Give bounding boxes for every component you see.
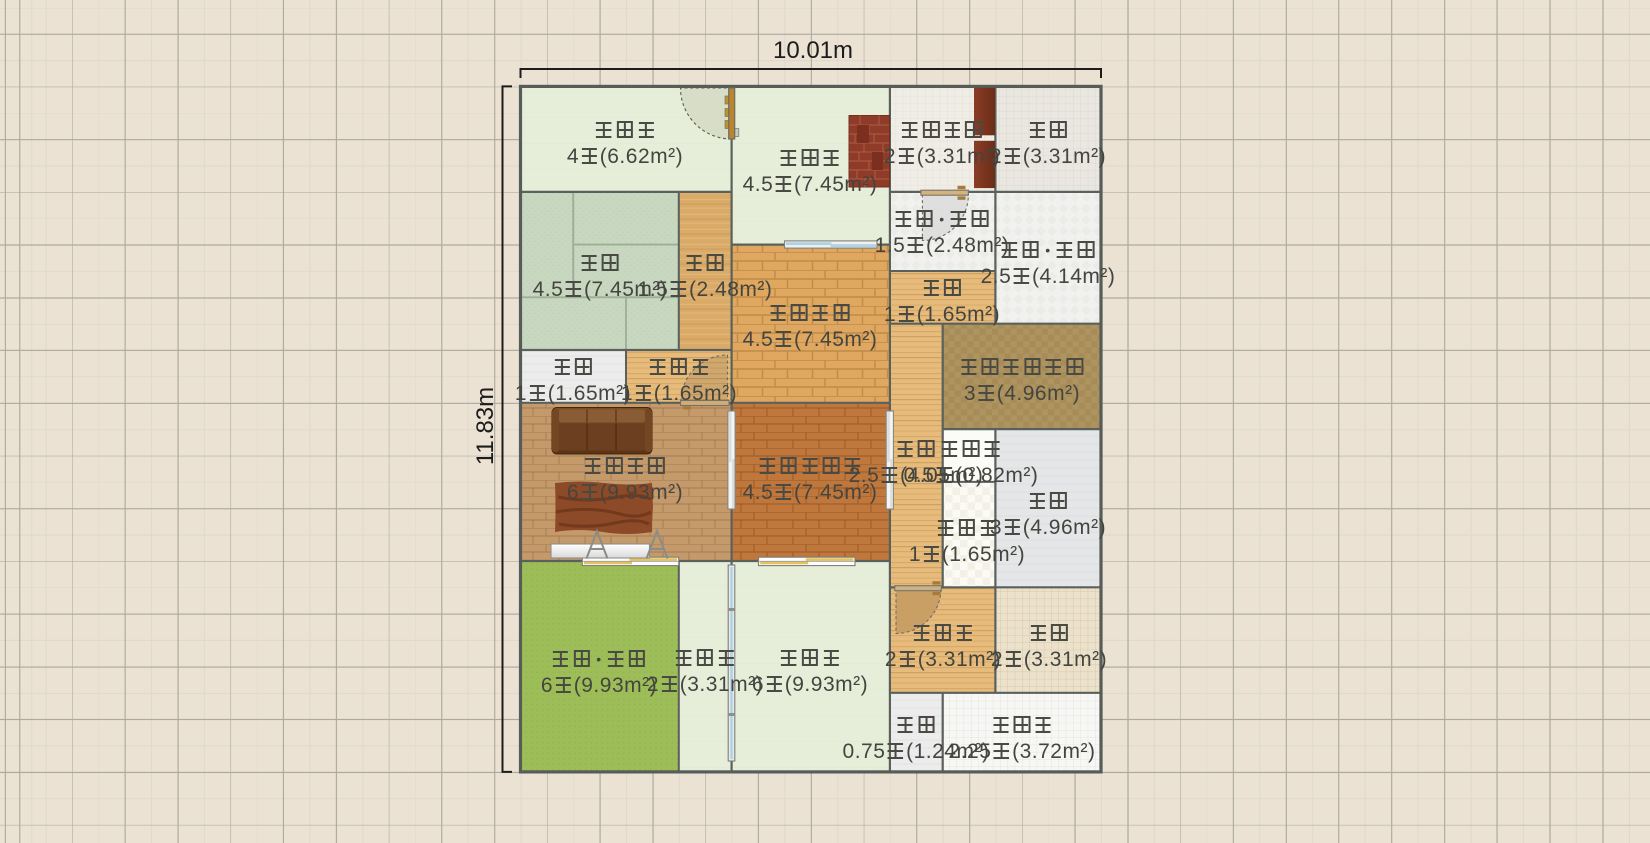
- svg-text:10.01m: 10.01m: [773, 37, 853, 64]
- svg-text:11.83m: 11.83m: [472, 387, 499, 465]
